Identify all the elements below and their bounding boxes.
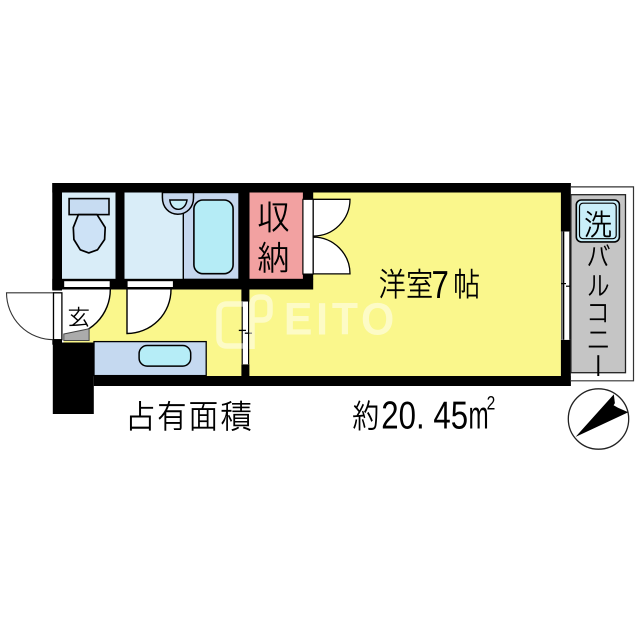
svg-text:20.: 20. [381,394,424,437]
svg-text:7: 7 [432,264,449,307]
svg-text:45: 45 [433,394,468,437]
svg-text:m: m [468,394,488,437]
svg-text:EITO: EITO [284,295,398,345]
